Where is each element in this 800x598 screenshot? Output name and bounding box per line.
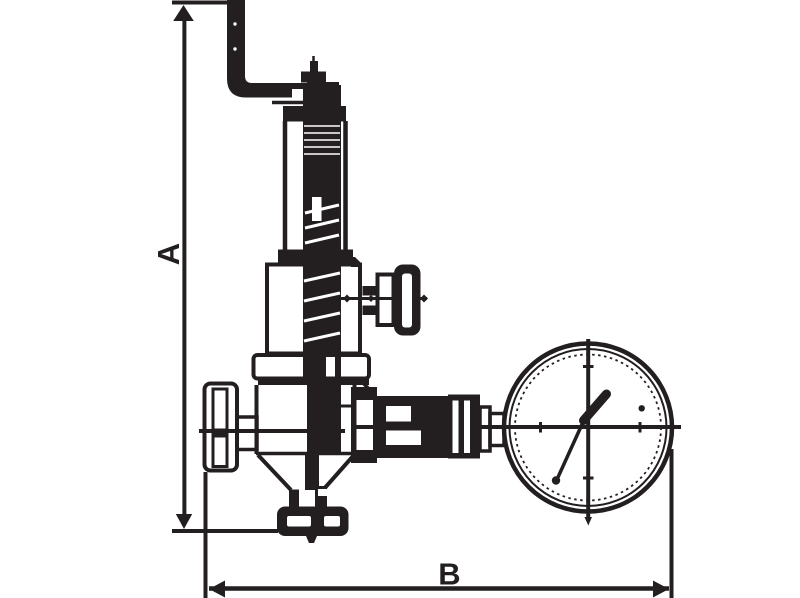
svg-text:B: B [438,557,460,592]
svg-text:A: A [151,243,186,265]
